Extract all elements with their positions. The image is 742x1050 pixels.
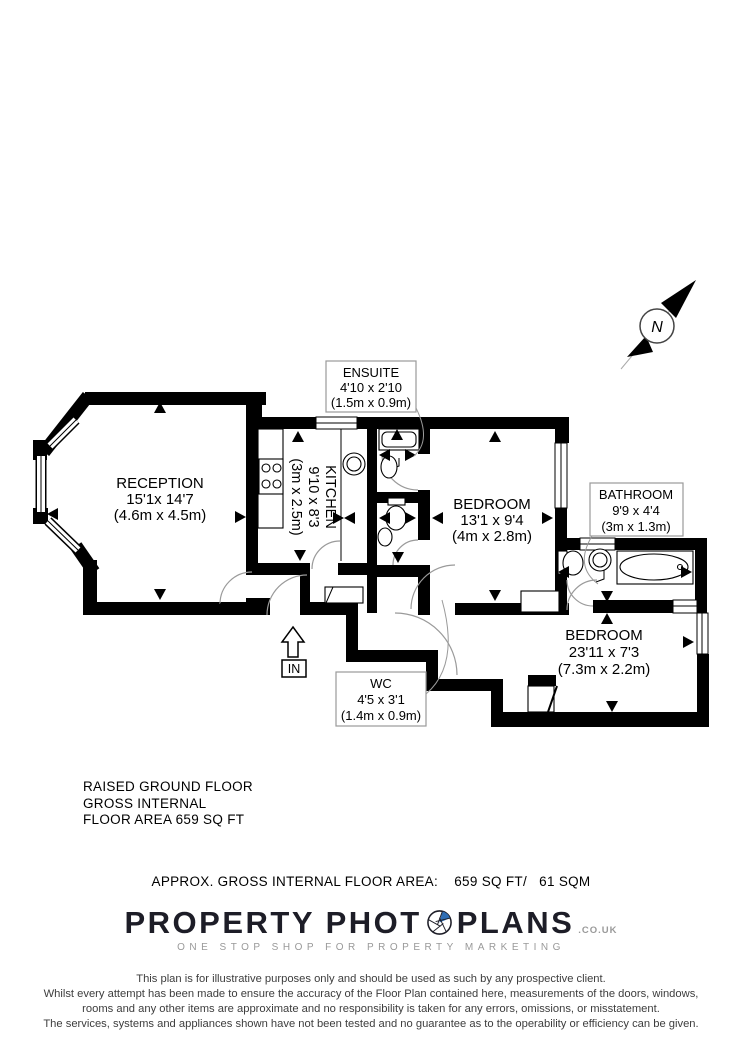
bathroom-name: BATHROOM bbox=[599, 487, 673, 502]
camera-shutter-icon bbox=[426, 909, 453, 941]
floorplan-drawing: RECEPTION 15'1x 14'7 (4.6m x 4.5m) KITCH… bbox=[0, 0, 742, 1050]
company-logo: PROPERTY PHOT PLANS .CO.UK ONE STOP SHOP… bbox=[0, 906, 742, 953]
floor-summary: RAISED GROUND FLOOR GROSS INTERNAL FLOOR… bbox=[83, 779, 253, 829]
kitchen-imperial: 9'10 x 8'3 bbox=[305, 466, 321, 527]
hall-cupboard bbox=[325, 587, 363, 603]
bathroom-imperial: 9'9 x 4'4 bbox=[612, 503, 660, 518]
floor-summary-line3: FLOOR AREA 659 SQ FT bbox=[83, 812, 253, 829]
disclaimer-line-1: This plan is for illustrative purposes o… bbox=[0, 972, 742, 987]
wc-metric: (1.4m x 0.9m) bbox=[341, 708, 421, 723]
wc-imperial: 4'5 x 3'1 bbox=[357, 692, 405, 707]
disclaimer-line-2: Whilst every attempt has been made to en… bbox=[0, 987, 742, 1002]
logo-suffix: .CO.UK bbox=[578, 925, 617, 940]
reception-metric: (4.6m x 4.5m) bbox=[114, 507, 207, 524]
bedroom2-metric: (7.3m x 2.2m) bbox=[558, 661, 651, 678]
disclaimer-line-3: rooms and any other items are approximat… bbox=[0, 1002, 742, 1017]
floorplan-page: RECEPTION 15'1x 14'7 (4.6m x 4.5m) KITCH… bbox=[0, 0, 742, 1050]
ensuite-metric: (1.5m x 0.9m) bbox=[331, 395, 411, 410]
entrance-label: IN bbox=[288, 662, 301, 676]
reception-imperial: 15'1x 14'7 bbox=[126, 491, 193, 508]
gross-area-line: APPROX. GROSS INTERNAL FLOOR AREA: 659 S… bbox=[0, 874, 742, 889]
bedroom2-imperial: 23'11 x 7'3 bbox=[569, 644, 640, 661]
ensuite-imperial: 4'10 x 2'10 bbox=[340, 380, 402, 395]
disclaimer-line-4: The services, systems and appliances sho… bbox=[0, 1017, 742, 1032]
kitchen-metric: (3m x 2.5m) bbox=[288, 458, 304, 535]
bathroom-metric: (3m x 1.3m) bbox=[601, 519, 670, 534]
reception-name: RECEPTION bbox=[116, 475, 204, 492]
wc-sink bbox=[378, 528, 392, 546]
bedroom1-name: BEDROOM bbox=[453, 496, 531, 513]
floor-summary-line2: GROSS INTERNAL bbox=[83, 796, 253, 813]
logo-text-left: PROPERTY PHOT bbox=[124, 906, 421, 940]
compass: N bbox=[621, 280, 696, 369]
compass-label: N bbox=[651, 319, 663, 336]
ensuite-name: ENSUITE bbox=[343, 365, 400, 380]
bedroom1-imperial: 13'1 x 9'4 bbox=[460, 512, 523, 529]
wc-cistern bbox=[388, 498, 405, 505]
entrance-arrow-icon bbox=[282, 627, 304, 657]
wc-name: WC bbox=[370, 676, 392, 691]
corridor-cupboard bbox=[521, 591, 559, 612]
bedroom2-name: BEDROOM bbox=[565, 627, 643, 644]
logo-text-right: PLANS bbox=[457, 906, 575, 940]
floor-summary-line1: RAISED GROUND FLOOR bbox=[83, 779, 253, 796]
disclaimer: This plan is for illustrative purposes o… bbox=[0, 972, 742, 1032]
kitchen-name: KITCHEN bbox=[322, 465, 338, 529]
logo-tagline: ONE STOP SHOP FOR PROPERTY MARKETING bbox=[0, 942, 742, 953]
entrance-marker: IN bbox=[282, 627, 306, 677]
bedroom1-metric: (4m x 2.8m) bbox=[452, 528, 532, 545]
